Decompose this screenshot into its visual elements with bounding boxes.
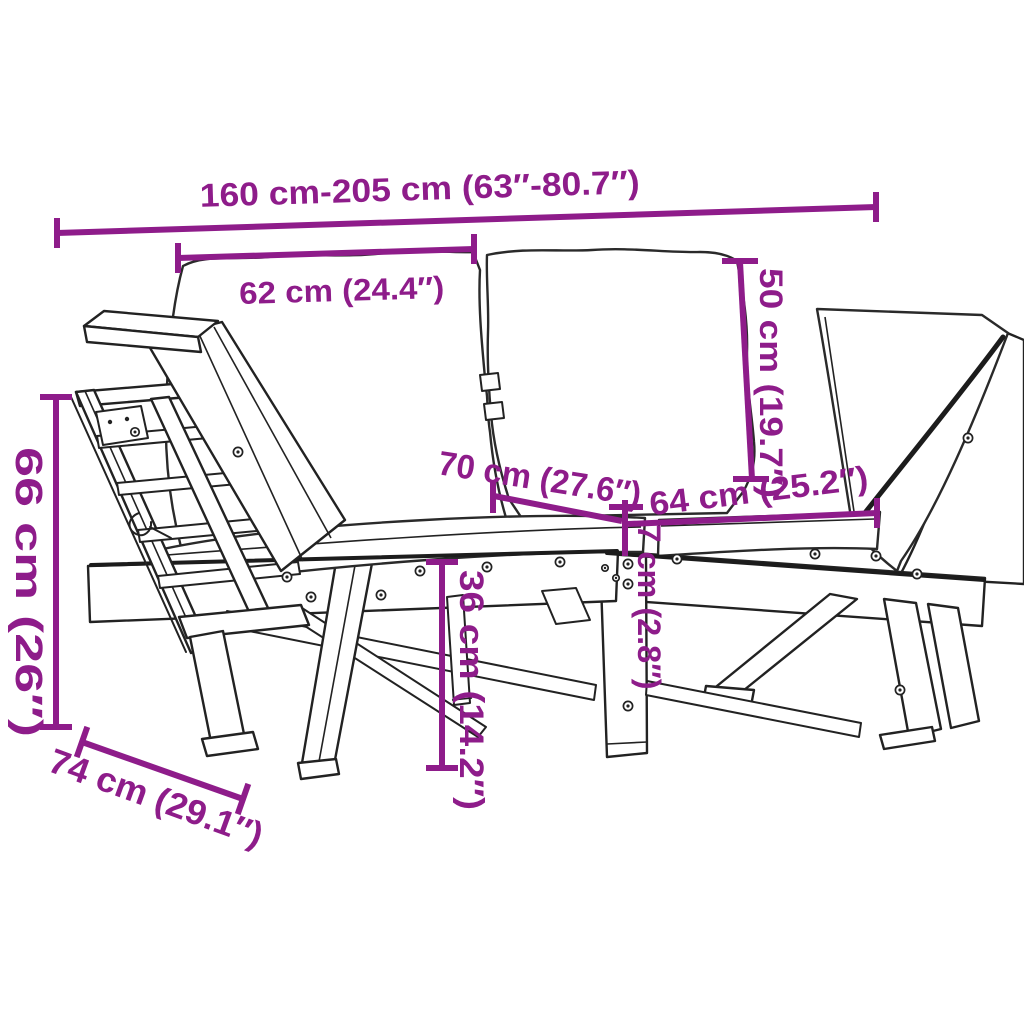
screw-icon [623,701,632,710]
screw-icon [963,433,972,442]
screw-icon [306,592,315,601]
left-front-leg-foot [298,759,339,779]
screw-icon [672,554,681,563]
screw-icon [895,685,904,694]
dim-cushion-thickness-label: 7 cm (2.8″) [631,525,667,690]
screw-icon [282,572,291,581]
dim-total-length-label: 160 cm-205 cm (63″-80.7″) [199,163,640,214]
hinge-plate [96,406,148,445]
screw-icon [233,447,242,456]
dim-seat-height-label: 36 cm (14.2″) [452,570,490,810]
screw-icon [810,549,819,558]
screw-icon [131,428,139,436]
screw-icon [602,565,608,571]
dim-side-panel-height-label: 66 cm (26″) [7,447,49,737]
screw-icon [912,569,921,578]
left-rear-leg [190,631,244,742]
dim-line [57,207,876,233]
hinge-pin [125,417,129,421]
screw-icon [376,590,385,599]
screw-icon [613,575,619,581]
pillow-seam-tab [480,373,500,391]
bench-dimension-diagram: 160 cm-205 cm (63″-80.7″) 62 cm (24.4″) … [0,0,1024,1024]
hinge-pin [108,420,112,424]
dim-back-cushion-width-label: 62 cm (24.4″) [239,270,445,311]
screw-icon [415,566,424,575]
diagram-canvas: 160 cm-205 cm (63″-80.7″) 62 cm (24.4″) … [0,0,1024,1024]
pillow-seam-tab [484,402,504,420]
right-leg-foot [880,727,935,749]
dim-backrest-height-label: 50 cm (19.7″) [753,268,789,498]
screw-icon [871,551,880,560]
screw-icon [555,557,564,566]
